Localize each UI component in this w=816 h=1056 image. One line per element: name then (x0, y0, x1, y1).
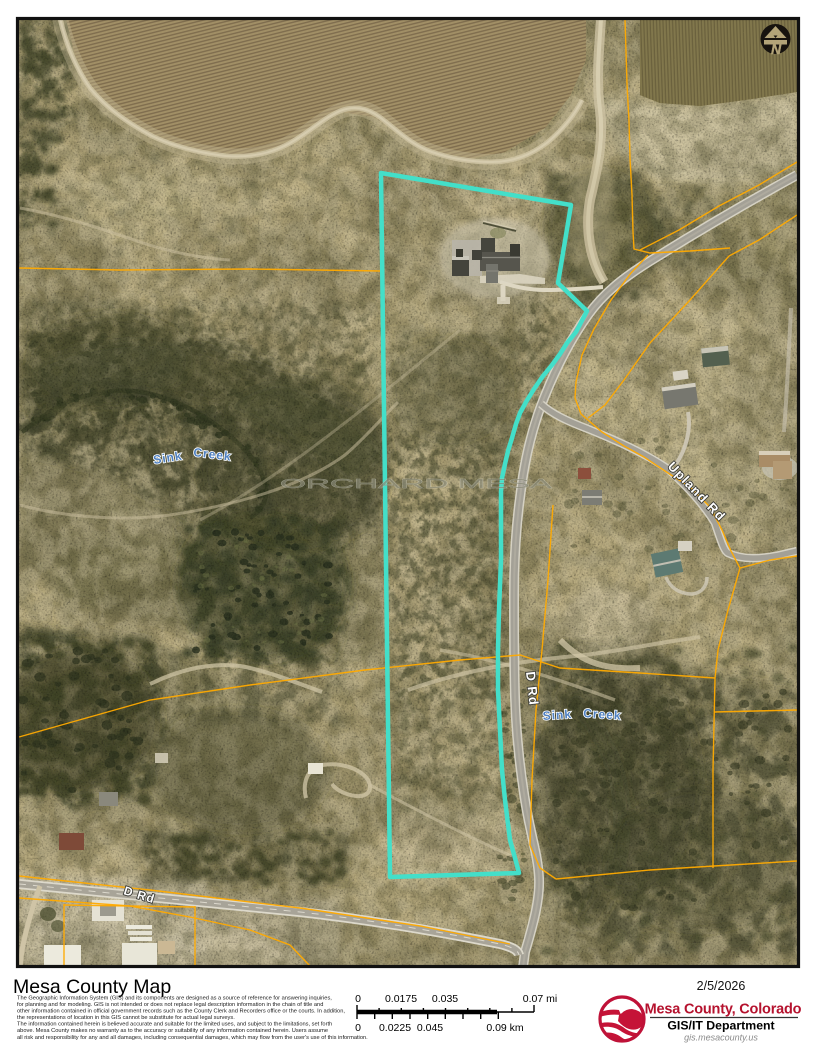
svg-text:Creek: Creek (583, 706, 622, 723)
svg-text:gis.mesacounty.us: gis.mesacounty.us (684, 1033, 758, 1043)
svg-text:0.045: 0.045 (417, 1022, 443, 1034)
svg-text:all risk and responsibility fo: all risk and responsibility for any and … (17, 1035, 368, 1041)
svg-text:other information contained in: other information contained in official … (17, 1009, 345, 1015)
svg-text:the representations of locatio: the representations of location in this … (17, 1015, 235, 1021)
svg-text:Mesa County, Colorado: Mesa County, Colorado (645, 1002, 802, 1018)
svg-text:2/5/2026: 2/5/2026 (697, 979, 746, 993)
svg-text:0.09 km: 0.09 km (486, 1022, 524, 1034)
svg-text:above. Mesa County makes no wa: above. Mesa County makes no warranty as … (17, 1028, 328, 1034)
svg-text:0: 0 (355, 1022, 361, 1034)
svg-text:0.07 mi: 0.07 mi (523, 993, 557, 1005)
svg-text:The information contained here: The information contained herein is beli… (17, 1022, 332, 1028)
svg-text:N: N (771, 41, 782, 57)
svg-text:The Geographic Information Sys: The Geographic Information System (GIS) … (17, 996, 332, 1002)
svg-text:for planning and for modeling.: for planning and for modeling. GIS is no… (17, 1002, 323, 1008)
svg-text:0.0225: 0.0225 (379, 1022, 411, 1034)
svg-text:ORCHARD MESA: ORCHARD MESA (280, 477, 554, 491)
svg-text:Sink: Sink (542, 707, 572, 723)
svg-text:0.0175: 0.0175 (385, 993, 417, 1005)
svg-text:0.035: 0.035 (432, 993, 458, 1005)
svg-text:GIS/IT Department: GIS/IT Department (667, 1019, 774, 1033)
svg-text:0: 0 (355, 993, 361, 1005)
